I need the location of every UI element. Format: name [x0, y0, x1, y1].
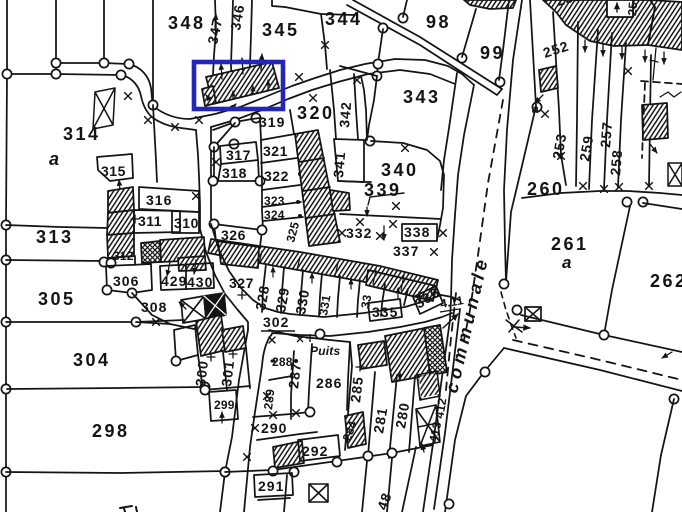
- svg-text:285: 285: [347, 375, 366, 403]
- svg-text:308: 308: [141, 299, 167, 315]
- svg-text:430: 430: [187, 274, 213, 290]
- svg-text:306: 306: [113, 273, 139, 289]
- svg-text:429: 429: [161, 273, 187, 289]
- svg-text:a: a: [532, 102, 539, 116]
- svg-text:262: 262: [650, 271, 682, 291]
- svg-text:337: 337: [393, 243, 419, 259]
- svg-text:312: 312: [113, 249, 134, 263]
- svg-text:341: 341: [330, 151, 348, 179]
- svg-text:a: a: [49, 149, 59, 169]
- svg-text:311: 311: [138, 213, 162, 229]
- svg-text:339: 339: [364, 180, 402, 200]
- svg-text:289: 289: [261, 388, 277, 410]
- svg-text:99: 99: [480, 43, 505, 63]
- svg-text:348: 348: [168, 13, 206, 33]
- svg-text:317: 317: [226, 147, 251, 163]
- svg-text:326: 326: [221, 227, 246, 243]
- svg-text:291: 291: [258, 478, 284, 494]
- svg-text:305: 305: [38, 289, 76, 309]
- svg-text:324: 324: [264, 208, 285, 222]
- svg-text:323: 323: [264, 194, 285, 208]
- svg-text:258: 258: [607, 149, 625, 177]
- svg-text:304: 304: [73, 350, 111, 370]
- svg-text:292: 292: [302, 443, 328, 459]
- svg-text:302: 302: [263, 314, 289, 330]
- svg-text:338: 338: [404, 224, 430, 240]
- svg-text:319: 319: [259, 114, 285, 130]
- svg-text:335: 335: [372, 304, 398, 320]
- svg-text:261: 261: [551, 234, 589, 254]
- svg-text:315: 315: [101, 163, 126, 179]
- svg-text:25: 25: [625, 1, 640, 16]
- svg-text:313: 313: [36, 227, 74, 247]
- svg-text:301: 301: [218, 359, 237, 387]
- svg-text:344: 344: [325, 9, 363, 29]
- svg-text:300: 300: [192, 359, 211, 387]
- svg-text:314: 314: [63, 124, 101, 144]
- svg-text:340: 340: [381, 160, 419, 180]
- svg-text:298: 298: [92, 421, 130, 441]
- svg-text:345: 345: [262, 20, 300, 40]
- svg-text:342: 342: [336, 101, 354, 129]
- svg-text:320: 320: [297, 103, 335, 123]
- svg-text:290: 290: [261, 420, 287, 436]
- svg-text:343: 343: [403, 87, 441, 107]
- svg-text:332: 332: [346, 225, 372, 241]
- svg-text:a: a: [562, 253, 571, 272]
- svg-text:286: 286: [316, 375, 342, 391]
- svg-text:287: 287: [285, 361, 304, 389]
- svg-text:Puits: Puits: [310, 344, 340, 358]
- svg-text:257: 257: [597, 121, 615, 149]
- svg-text:316: 316: [146, 192, 172, 208]
- svg-text:321: 321: [263, 143, 288, 159]
- svg-text:322: 322: [264, 168, 289, 184]
- svg-text:299: 299: [214, 398, 235, 412]
- svg-text:98: 98: [426, 12, 451, 32]
- svg-text:260: 260: [527, 179, 565, 199]
- svg-text:310: 310: [174, 215, 199, 231]
- svg-text:318: 318: [222, 165, 247, 181]
- svg-text:327: 327: [229, 275, 254, 291]
